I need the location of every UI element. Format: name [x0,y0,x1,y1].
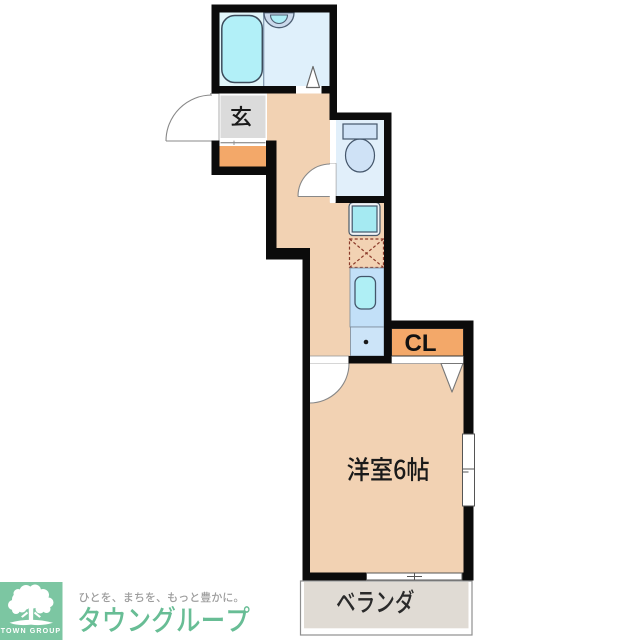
svg-text:TOWN GROUP: TOWN GROUP [1,627,62,635]
svg-text:CL: CL [405,330,437,357]
